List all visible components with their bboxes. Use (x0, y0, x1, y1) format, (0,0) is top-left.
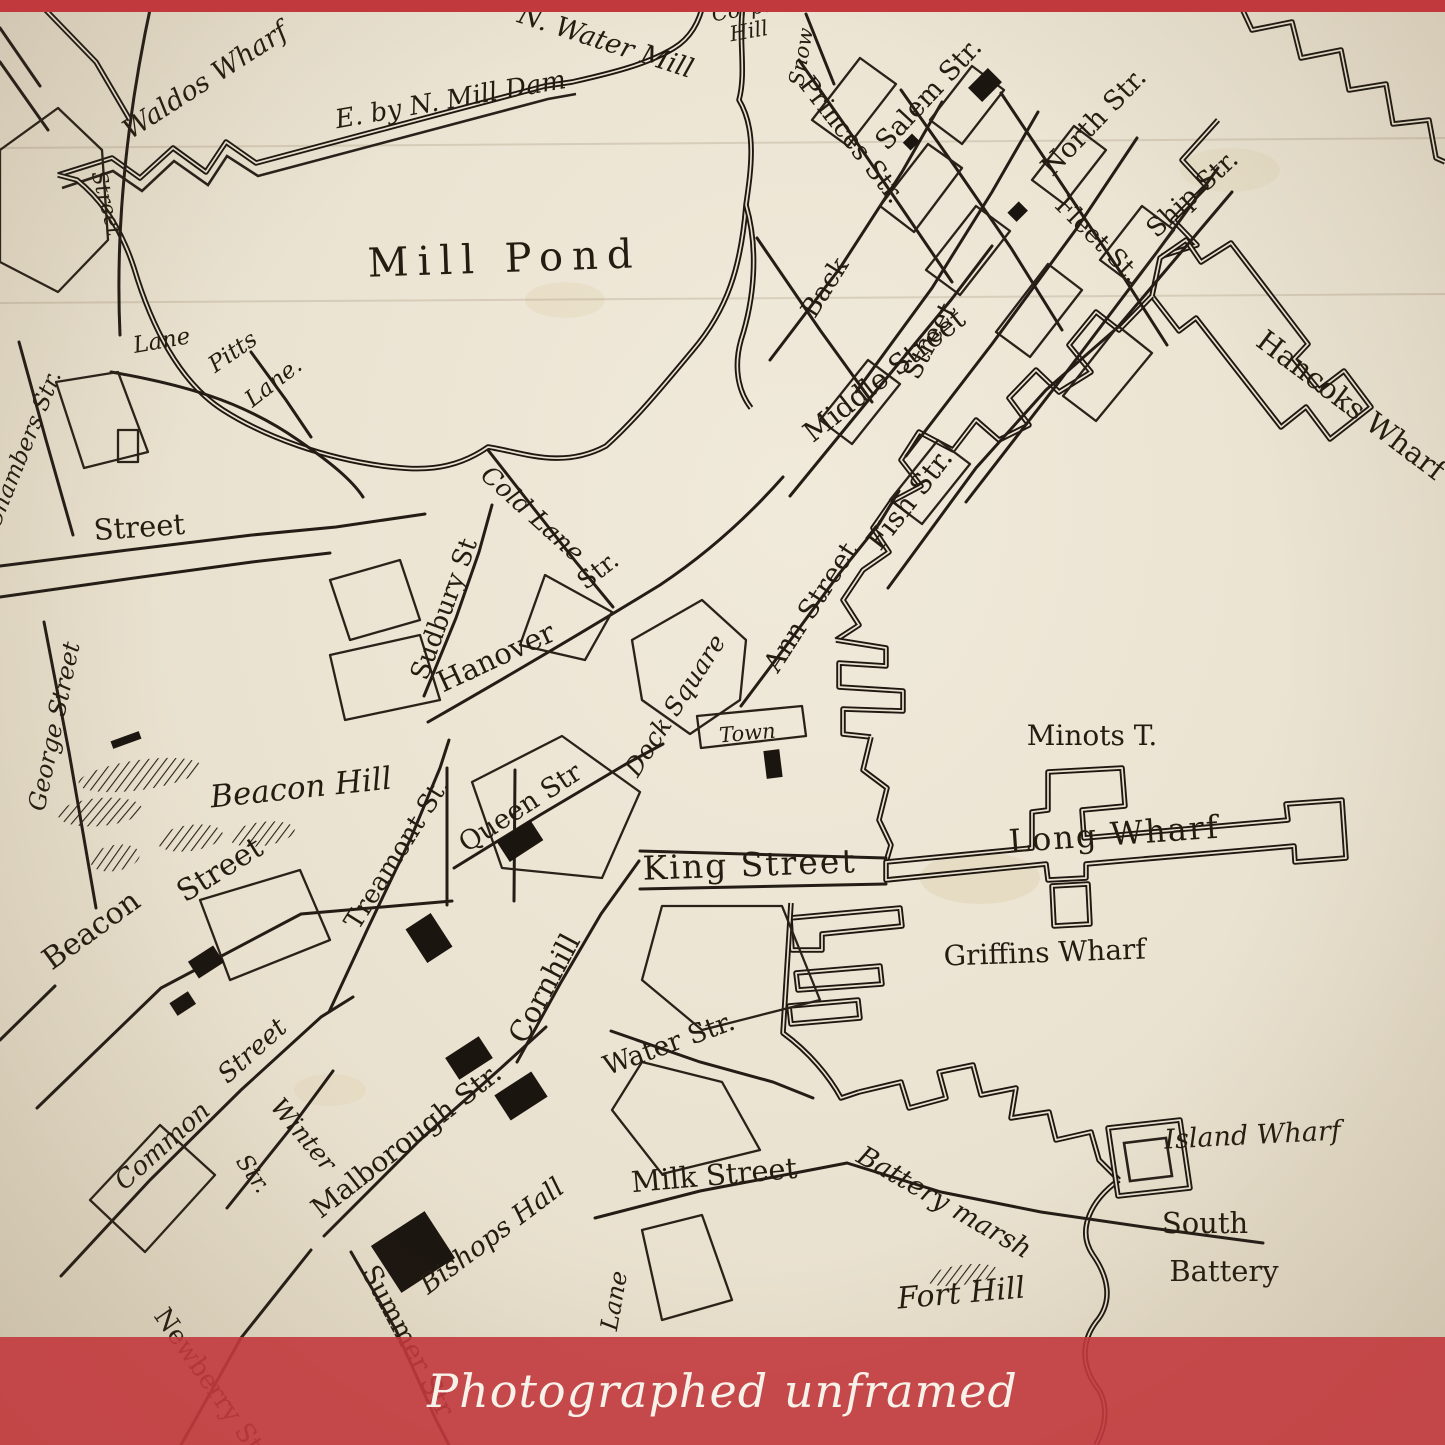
map-label-island-wharf: Island Wharf (1163, 1115, 1346, 1155)
map-label-fleet-st: Fleet St. (1050, 191, 1147, 288)
map-label-beacon: Beacon (36, 883, 147, 977)
map-label-south: South (1162, 1206, 1248, 1240)
map-label-battery-marsh: Battery marsh (851, 1140, 1037, 1265)
map-label-back: Back (795, 252, 855, 323)
map-label-lane: Lane (595, 1269, 633, 1334)
map-label-mill-pond: Mill Pond (367, 231, 642, 287)
bottom-banner: Photographed unframed (0, 1337, 1445, 1445)
top-red-strip (0, 0, 1445, 12)
map-label-street: Street (93, 507, 187, 547)
map-label-battery: Battery (1169, 1254, 1279, 1288)
map-labels: Waldos WharfN. Water MillE. by N. Mill D… (0, 0, 1445, 1445)
map-label-minots-t: Minots T. (1027, 719, 1158, 752)
map-label-milk-street: Milk Street (630, 1151, 799, 1199)
map-label-lane: Lane. (239, 352, 307, 413)
map-label-fish-str: Fish Str. (860, 442, 959, 556)
map-photo: Waldos WharfN. Water MillE. by N. Mill D… (0, 0, 1445, 1445)
map-label-chambers-str: Chambers Str. (0, 367, 67, 532)
map-label-griffins-wharf: Griffins Wharf (943, 932, 1149, 972)
map-label-pitts: Pitts (203, 326, 262, 378)
map-label-lane: Lane (130, 323, 192, 359)
banner-caption: Photographed unframed (427, 1364, 1018, 1418)
map-image: Waldos WharfN. Water MillE. by N. Mill D… (0, 0, 1445, 1445)
map-label-king-street: King Street (642, 841, 857, 887)
map-label-common: Common (109, 1096, 216, 1197)
map-label-beacon-hill: Beacon Hill (207, 761, 393, 816)
map-label-water-str: Water Str. (599, 1006, 739, 1082)
map-label-middle-street: Middle Street (797, 302, 972, 449)
map-label-hancoks-wharf: Hancoks Wharf (1250, 323, 1445, 488)
map-label-town: Town (718, 719, 776, 748)
map-label-cold-lane: Cold Lane (475, 460, 590, 568)
map-label-fort-hill: Fort Hill (895, 1271, 1027, 1317)
